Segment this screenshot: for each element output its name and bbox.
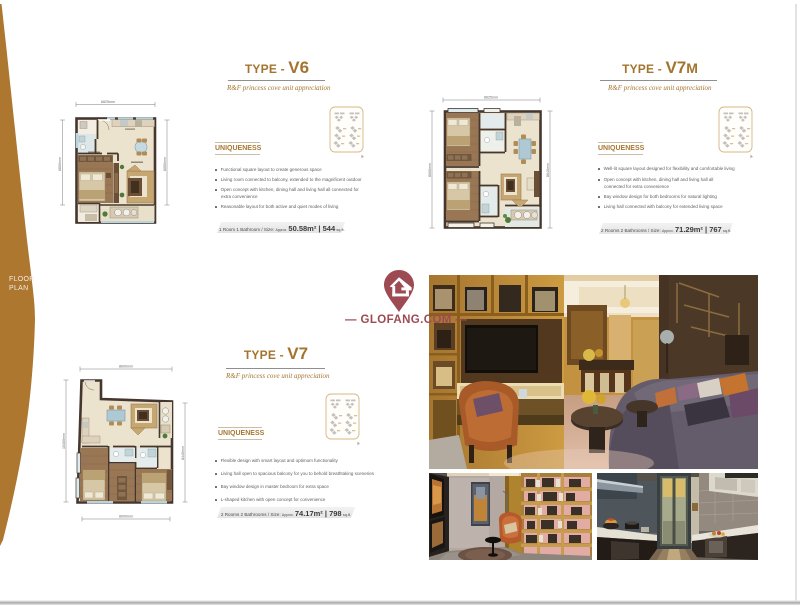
svg-text:8000mm: 8000mm (428, 163, 432, 177)
svg-text:6800mm: 6800mm (58, 157, 62, 171)
svg-text:8600mm: 8600mm (119, 365, 133, 369)
svg-text:8625mm: 8625mm (484, 96, 498, 100)
svg-text:6825mm: 6825mm (101, 100, 115, 104)
svg-text:8440mm: 8440mm (181, 446, 185, 460)
svg-text:8000mm: 8000mm (119, 515, 133, 519)
svg-text:10300mm: 10300mm (62, 433, 66, 449)
svg-text:8050mm: 8050mm (163, 157, 167, 171)
svg-text:8640mm: 8640mm (546, 163, 550, 177)
